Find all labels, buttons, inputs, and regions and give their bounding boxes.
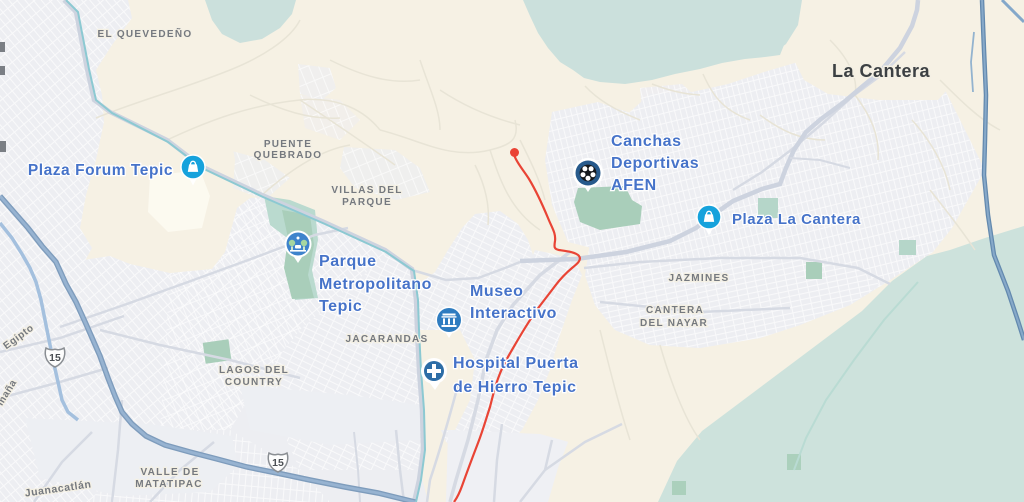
- svg-text:15: 15: [272, 457, 284, 469]
- svg-text:AFEN: AFEN: [611, 177, 657, 194]
- svg-text:Plaza La Cantera: Plaza La Cantera: [732, 211, 861, 228]
- svg-text:VALLE DE: VALLE DE: [140, 467, 199, 478]
- svg-text:LAGOS DEL: LAGOS DEL: [219, 365, 289, 376]
- svg-text:Interactivo: Interactivo: [470, 305, 557, 322]
- svg-text:MATATIPAC: MATATIPAC: [135, 479, 203, 490]
- svg-text:COUNTRY: COUNTRY: [225, 377, 283, 388]
- svg-text:Metropolitano: Metropolitano: [319, 276, 432, 293]
- svg-text:Plaza Forum Tepic: Plaza Forum Tepic: [28, 162, 173, 179]
- svg-text:Museo: Museo: [470, 283, 523, 300]
- svg-text:La Cantera: La Cantera: [832, 61, 931, 81]
- svg-text:Canchas: Canchas: [611, 133, 682, 150]
- svg-text:Tepic: Tepic: [319, 298, 362, 315]
- svg-text:JAZMINES: JAZMINES: [669, 273, 730, 284]
- svg-text:DEL NAYAR: DEL NAYAR: [640, 318, 708, 329]
- svg-text:CANTERA: CANTERA: [646, 305, 704, 316]
- svg-text:QUEBRADO: QUEBRADO: [254, 150, 323, 161]
- svg-text:EL QUEVEDEÑO: EL QUEVEDEÑO: [98, 27, 193, 40]
- svg-text:PARQUE: PARQUE: [342, 197, 392, 208]
- svg-text:JACARANDAS: JACARANDAS: [345, 334, 428, 345]
- svg-text:VILLAS DEL: VILLAS DEL: [331, 185, 402, 196]
- svg-text:de Hierro Tepic: de Hierro Tepic: [453, 379, 577, 396]
- svg-text:Parque: Parque: [319, 253, 377, 270]
- svg-text:15: 15: [49, 352, 61, 364]
- svg-text:PUENTE: PUENTE: [264, 139, 312, 150]
- svg-text:Deportivas: Deportivas: [611, 155, 699, 172]
- svg-text:Hospital Puerta: Hospital Puerta: [453, 355, 579, 372]
